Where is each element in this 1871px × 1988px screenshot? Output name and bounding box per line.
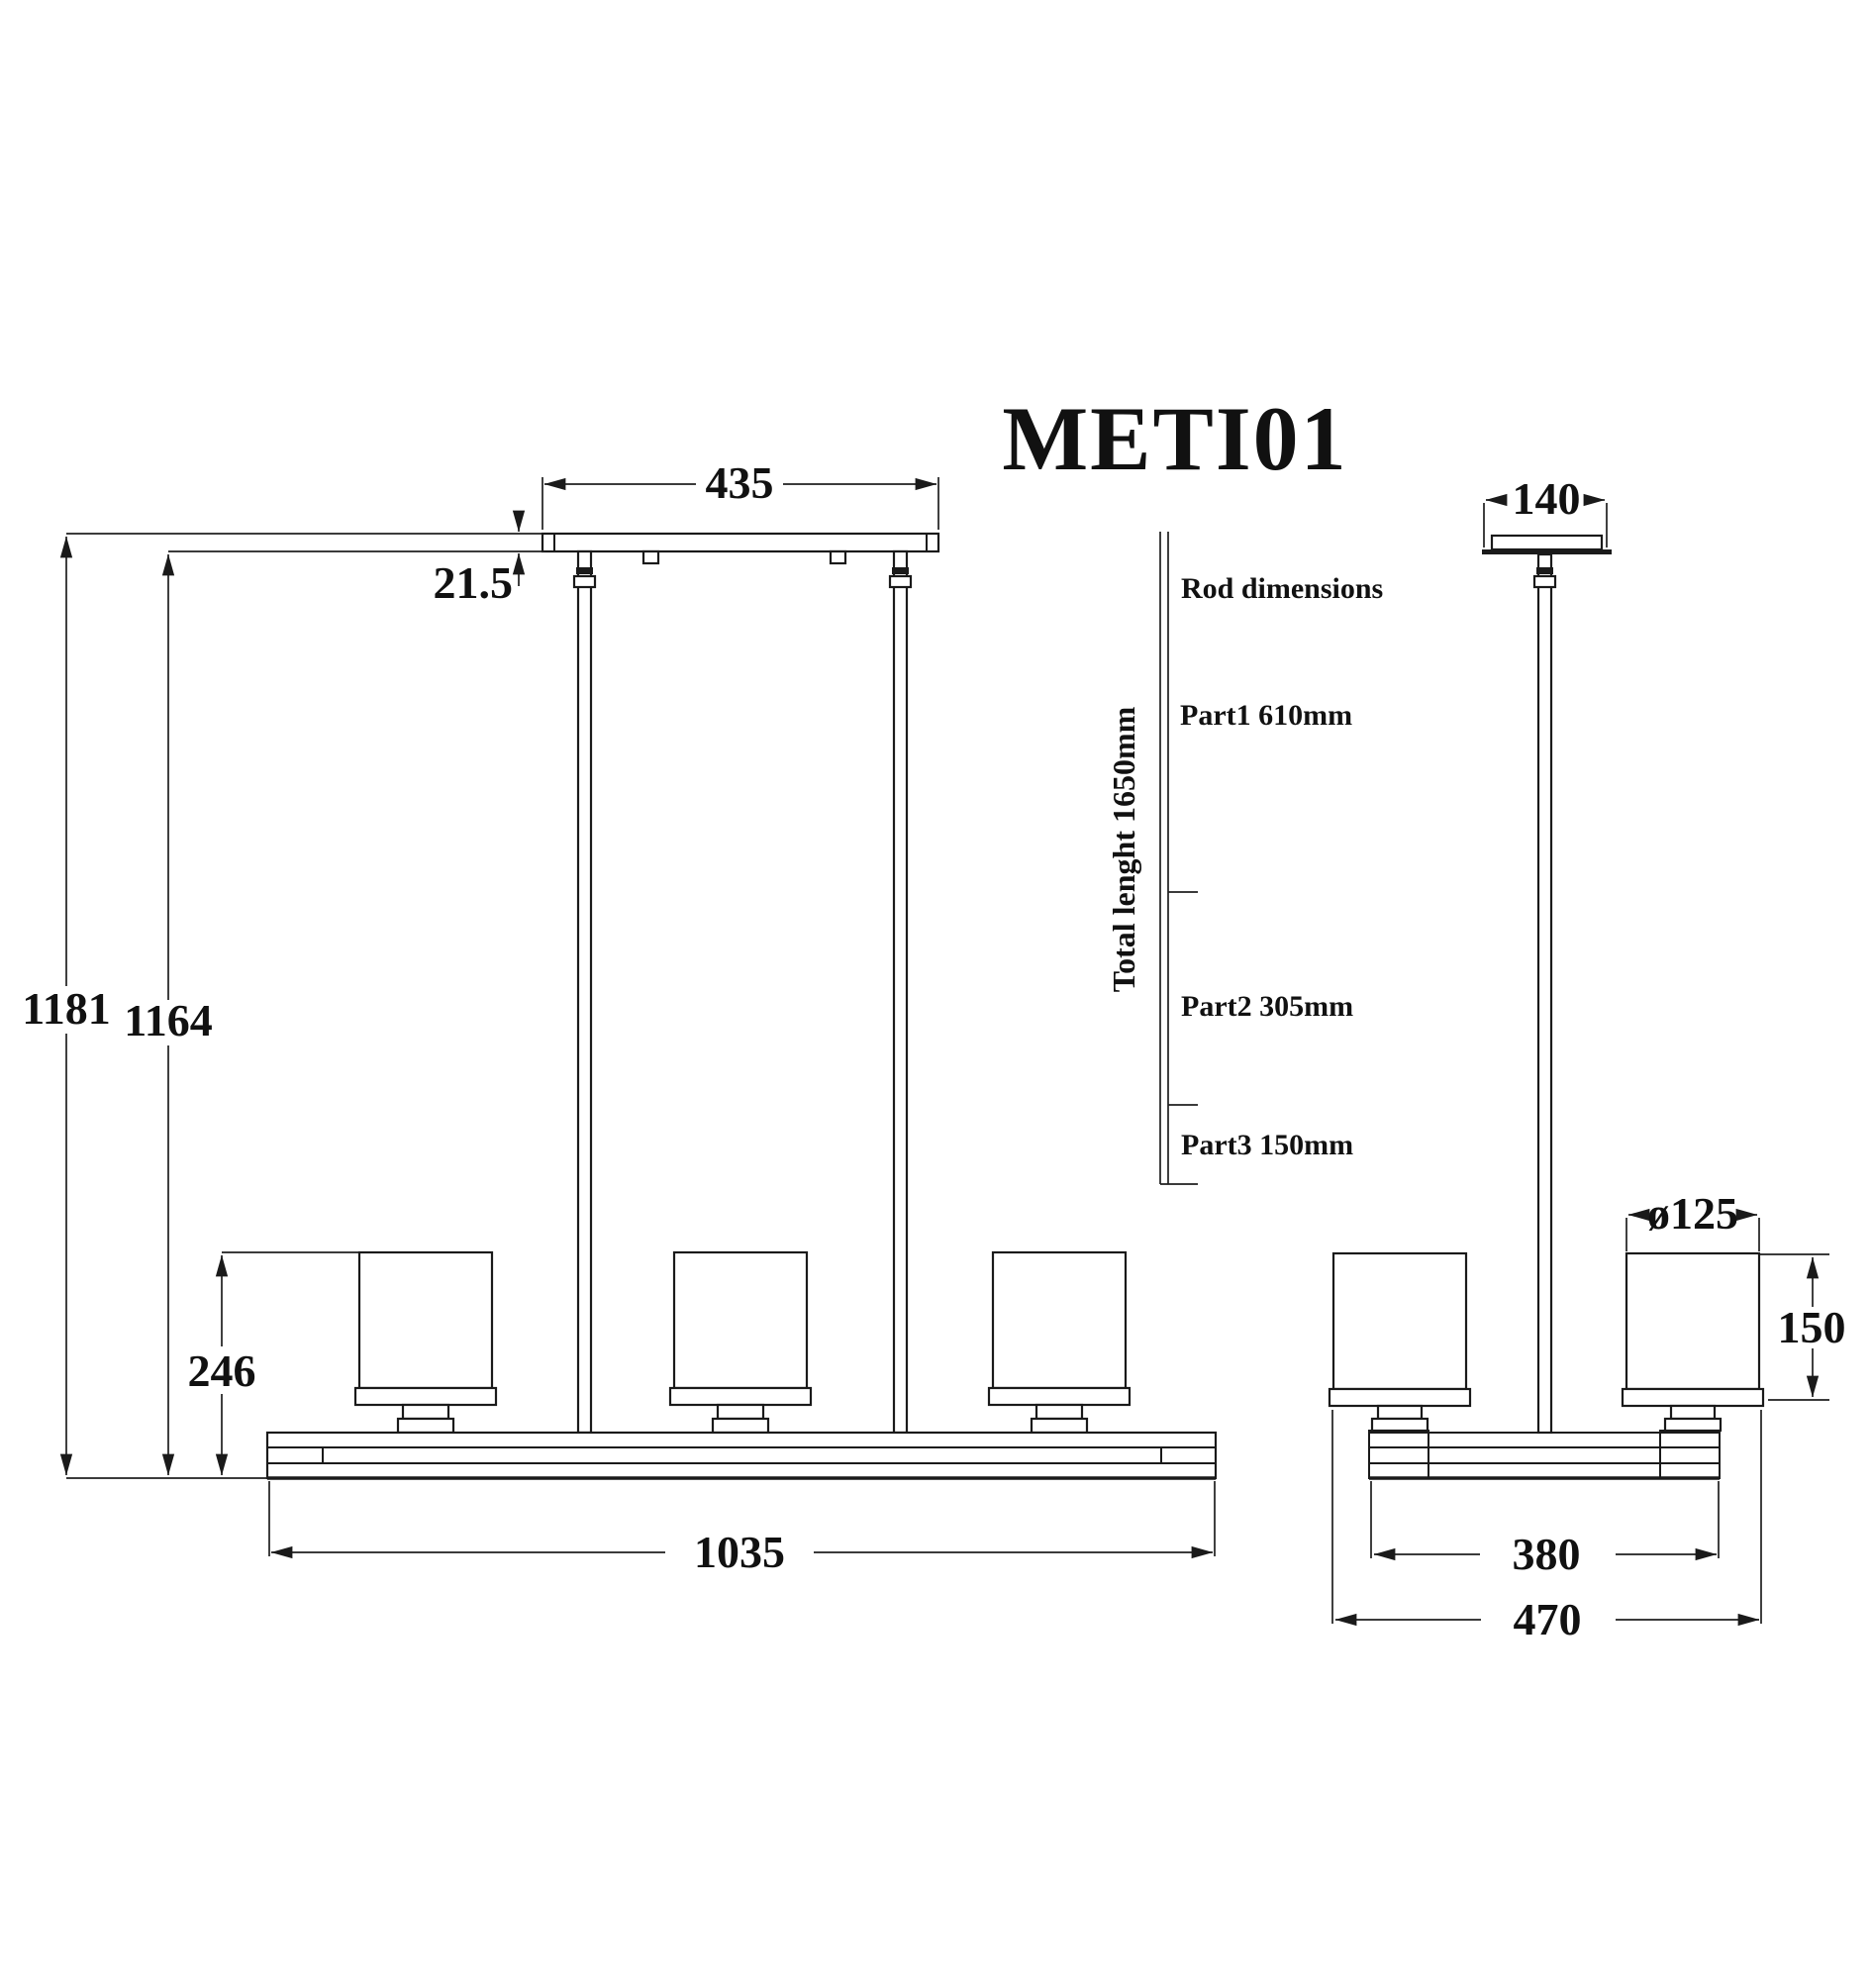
shade-base [1665,1419,1721,1431]
rod-total-length: Total lenght 1650mm [1106,706,1141,992]
shade-left [1329,1253,1470,1431]
rod-table-heading: Rod dimensions [1181,572,1383,605]
drawing-title: METI01 [1002,388,1347,489]
beam-outline [267,1433,1216,1478]
shade-2 [670,1252,811,1433]
rod-joint [576,567,593,574]
shade-body [359,1252,492,1388]
dim-shade-diameter: ø125 [1647,1188,1738,1239]
shade-stem [1036,1405,1082,1419]
rod-joint [1536,567,1553,574]
dim-canopy-depth: 140 [1513,473,1581,524]
rod-coupler [1534,576,1555,587]
front-view [267,534,1216,1478]
dim-shade-to-beam: 246 [188,1345,256,1396]
shade-body [1333,1253,1466,1389]
shade-stem [403,1405,448,1419]
shade-right [1623,1253,1763,1431]
beam [267,1433,1216,1478]
shade-base [1372,1419,1428,1431]
rod-part-2: Part2 305mm [1181,990,1353,1023]
beam-mount-block [1660,1431,1720,1478]
shade-body [1626,1253,1759,1389]
shade-ring [989,1388,1130,1405]
rod-joint [892,567,909,574]
shade-body [674,1252,807,1388]
shade-stem [718,1405,763,1419]
rod-coupler [890,576,911,587]
shade-stem [1378,1406,1422,1419]
dim-canopy-width: 435 [706,457,774,508]
rod-part-1: Part1 610mm [1180,699,1352,732]
title-block: METI01 [1002,388,1347,489]
beam-end [1369,1431,1720,1478]
rod-dimension-table: Rod dimensions Part1 610mm Part2 305mm P… [1106,532,1383,1184]
shade-base [1032,1419,1087,1433]
dim-beam-depth: 380 [1513,1529,1581,1579]
shade-body [993,1252,1126,1388]
shade-ring [355,1388,496,1405]
drawing-canvas: METI01 [0,0,1871,1988]
dim-canopy-thickness: 21.5 [434,557,514,608]
beam-mount-block [1369,1431,1428,1478]
dim-drop-below-canopy: 1164 [124,995,212,1045]
shade-ring [1623,1389,1763,1406]
dim-shade-height: 150 [1778,1302,1846,1352]
rod-part-3: Part3 150mm [1181,1129,1353,1161]
shade-1 [355,1252,496,1433]
shade-base [398,1419,453,1433]
dim-overall-depth: 470 [1514,1594,1582,1644]
suspension-rod [894,551,907,1433]
shade-3 [989,1252,1130,1433]
side-view [1329,536,1763,1478]
suspension-rod [1538,554,1551,1433]
technical-drawing: METI01 [0,0,1871,1988]
canopy-plate [1492,536,1602,549]
side-view-dimensions: 140 ø125 150 380 470 [1332,473,1846,1644]
canopy-plate [542,534,938,551]
shade-ring [670,1388,811,1405]
shade-ring [1329,1389,1470,1406]
dim-beam-length: 1035 [694,1527,785,1577]
canopy-clip [831,551,845,563]
rod-coupler [574,576,595,587]
shade-base [713,1419,768,1433]
shade-stem [1671,1406,1715,1419]
dim-overall-drop: 1181 [22,983,110,1034]
suspension-rod [578,551,591,1433]
canopy-clip [643,551,658,563]
